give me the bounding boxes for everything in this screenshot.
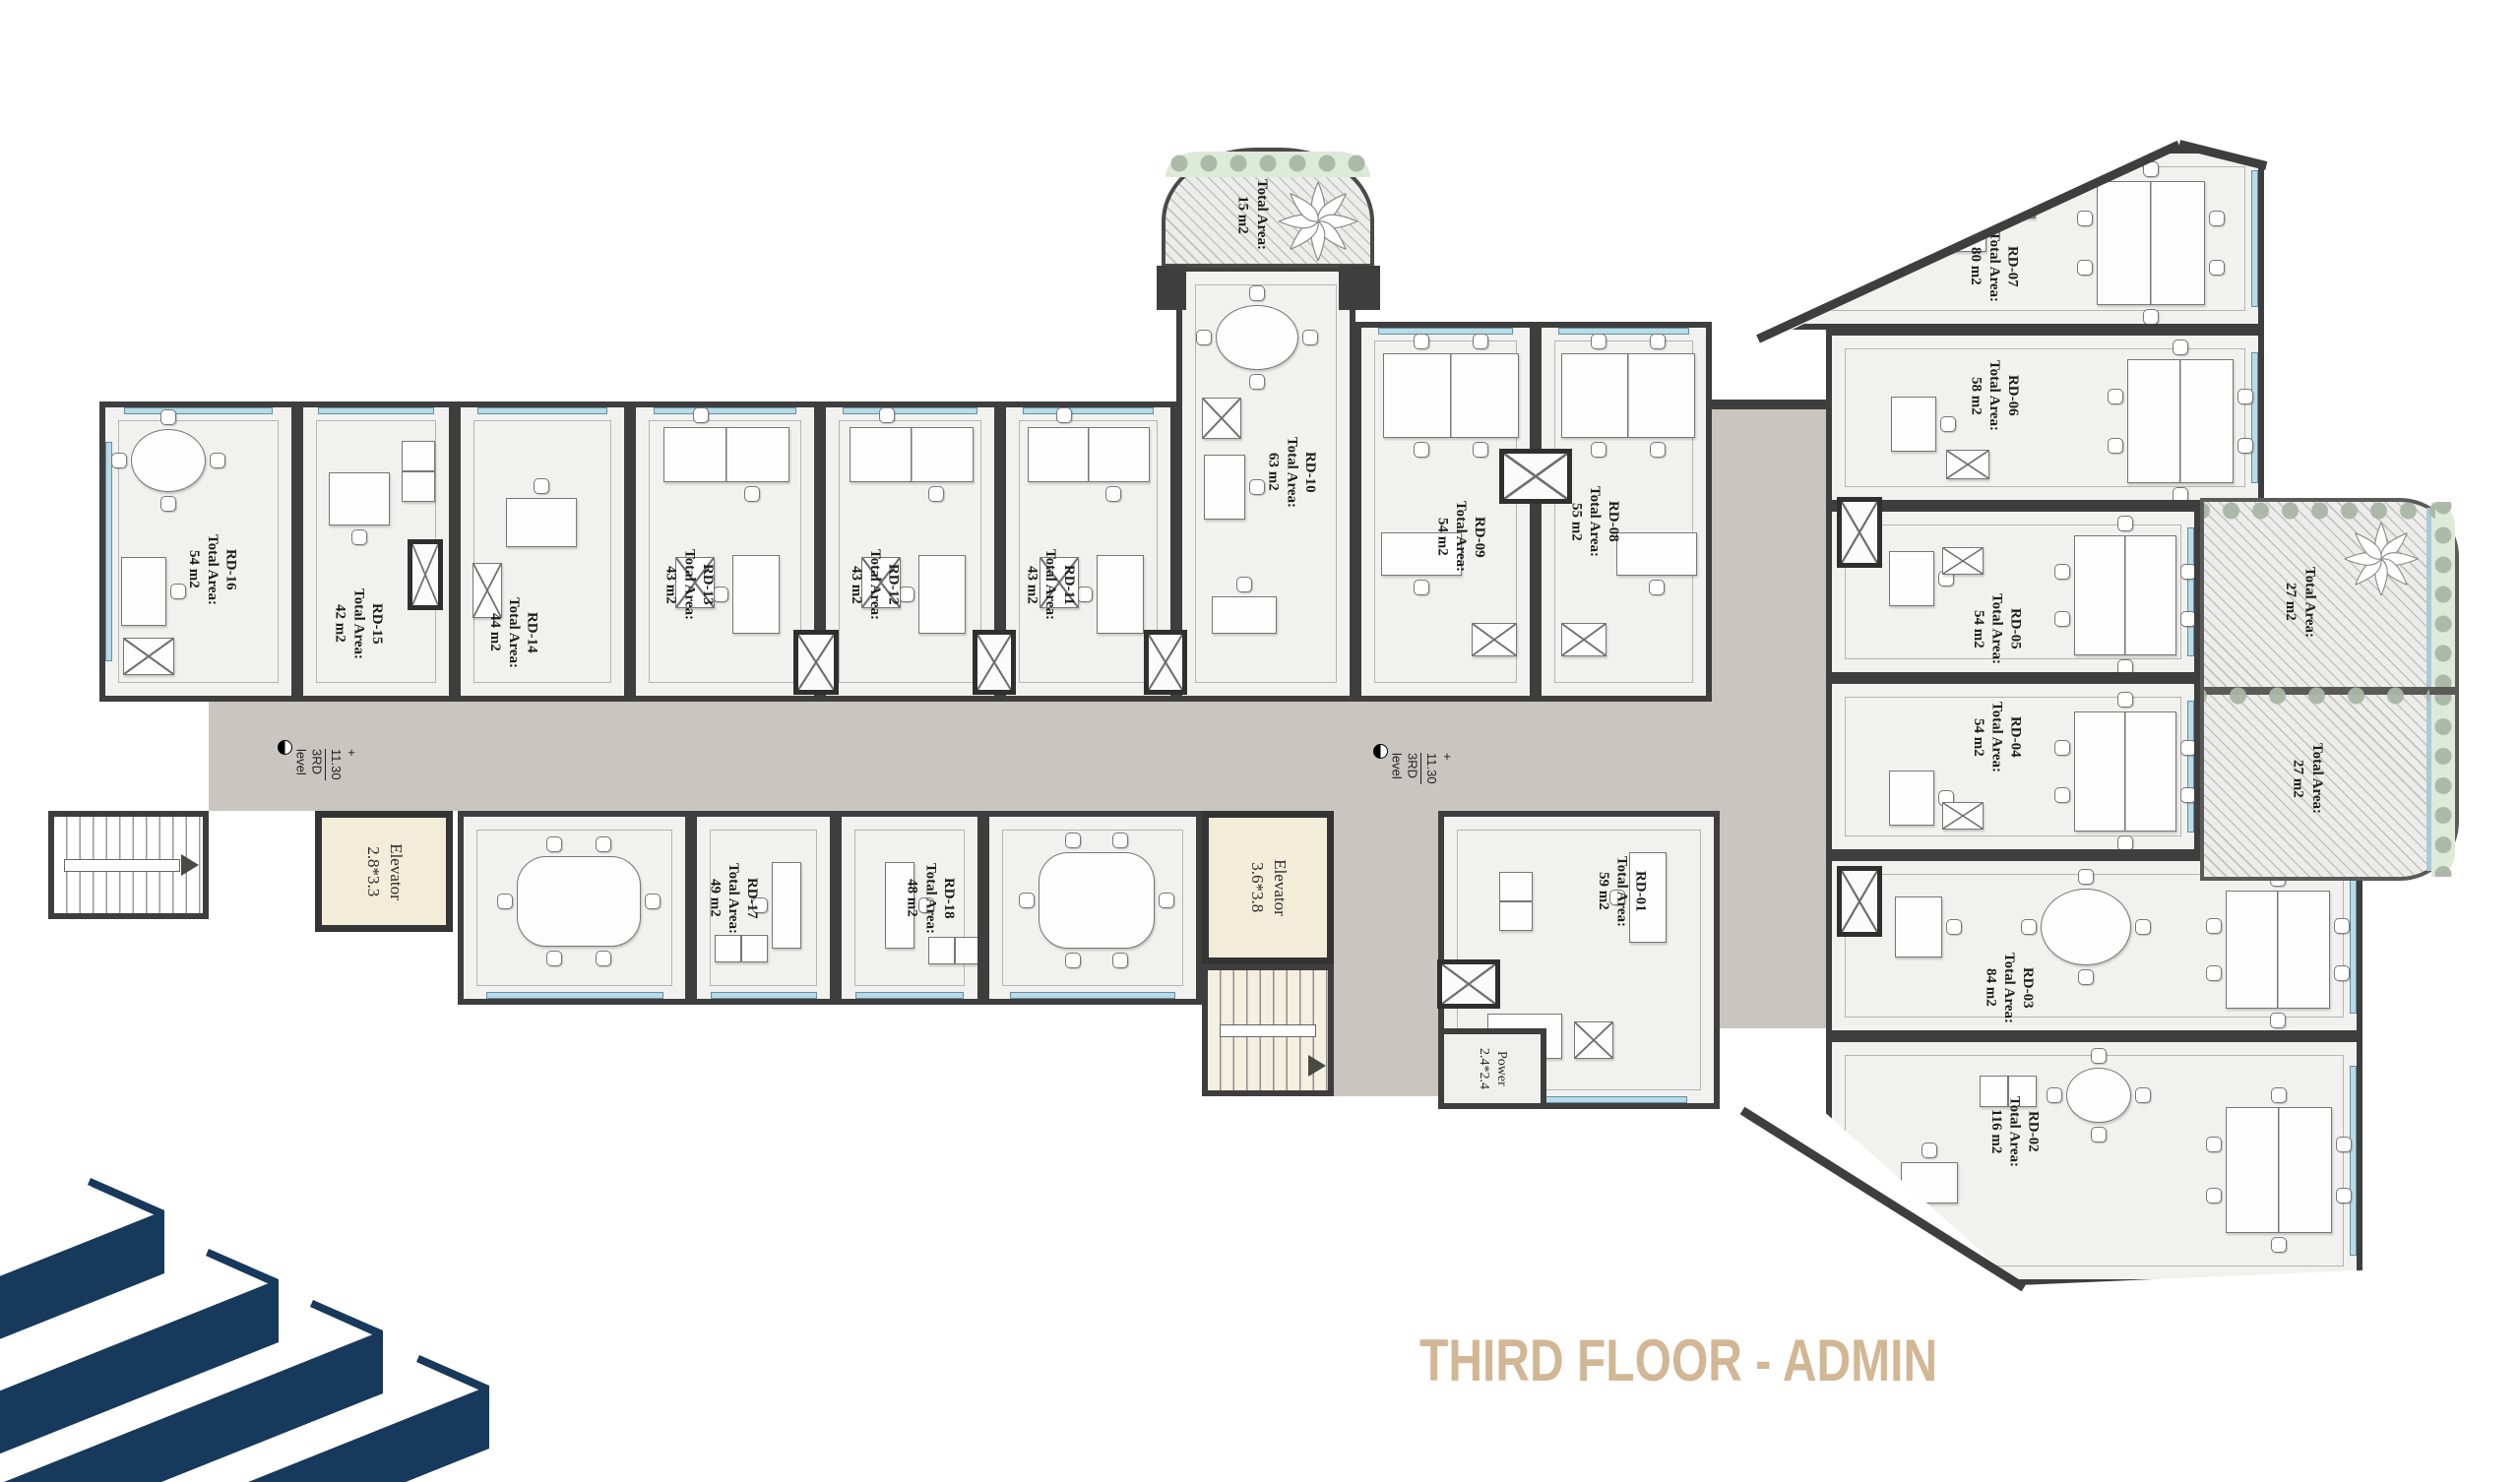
chair (2077, 211, 2093, 226)
chair (2206, 965, 2222, 981)
power-size: 2.4*2.4 (1475, 1048, 1492, 1089)
window (124, 407, 273, 414)
window (2187, 527, 2194, 655)
cabinet (1499, 872, 1533, 931)
desk (329, 472, 390, 525)
terrace-area-label: Total Area: (2299, 566, 2319, 637)
room-name: RD-09 (1470, 501, 1488, 572)
meeting-table (2041, 889, 2131, 965)
meeting-table (1039, 852, 1155, 949)
room-label: RD-09Total Area:54 m2 (1433, 501, 1488, 572)
window (477, 407, 608, 414)
desk (1891, 397, 1936, 452)
chair (2206, 1188, 2222, 1204)
chair (1414, 442, 1429, 458)
wall-pillar (1339, 266, 1380, 310)
chair (1649, 580, 1665, 595)
room-label: RD-05Total Area:54 m2 (1969, 593, 2024, 664)
workstation (2074, 711, 2176, 832)
level-name: 3RD level (1388, 753, 1420, 784)
chair (2047, 1087, 2062, 1103)
room-RD-05: RD-05Total Area:54 m2 (1826, 506, 2200, 678)
chair (2117, 835, 2133, 851)
chair (2209, 211, 2225, 226)
wardrobe (1561, 623, 1606, 656)
room-area-value: 54 m2 (1969, 593, 1987, 664)
terrace-area-value: 27 m2 (2288, 743, 2307, 814)
desk (1895, 896, 1942, 957)
chair (2180, 611, 2196, 627)
shrub-row-icon (2424, 695, 2463, 877)
wall-pillar (1157, 266, 1186, 310)
window (855, 992, 964, 999)
chair (546, 836, 562, 852)
elevator-label: Elevator 2.8*3.3 (361, 843, 407, 900)
shaft (1499, 449, 1572, 504)
workstation (1383, 353, 1519, 438)
cabinet (402, 441, 435, 502)
room-area-value: 42 m2 (331, 588, 349, 659)
elevator-west: Elevator 2.8*3.3 (315, 811, 453, 932)
terrace-area-value: 27 m2 (2280, 566, 2299, 637)
chair (2180, 740, 2196, 756)
room-name: RD-02 (2024, 1096, 2043, 1167)
desk (1901, 1162, 1958, 1204)
terrace-area-value: 15 m2 (1232, 179, 1252, 250)
chair (497, 894, 513, 909)
room-area-value: 43 m2 (661, 549, 680, 620)
chair (1056, 407, 1072, 423)
room-area-label: Total Area: (865, 549, 884, 620)
wall-cap (1712, 400, 1832, 409)
chair (1159, 893, 1174, 908)
room-area-label: Total Area: (1984, 360, 2003, 431)
room-area-label: Total Area: (1612, 856, 1631, 927)
meeting-table (517, 856, 641, 947)
chair (2237, 438, 2253, 454)
room-area-label: Total Area: (724, 863, 742, 934)
room-area-value: 116 m2 (1986, 1096, 2005, 1167)
window (1010, 992, 1175, 999)
page-title: THIRD FLOOR - ADMIN (1419, 1327, 1937, 1394)
chair (2143, 309, 2159, 325)
wardrobe (1472, 623, 1517, 656)
level-name: 3RD level (292, 749, 325, 780)
level-marker-text: + 11.30 3RD level (292, 749, 359, 780)
chair (2117, 516, 2133, 531)
room-label: RD-13Total Area:43 m2 (661, 549, 717, 620)
room-name: RD-17 (742, 863, 761, 934)
chair (351, 529, 367, 545)
terrace-east-upper: Total Area: 27 m2 (2200, 498, 2459, 691)
elevator-size: 2.8*3.3 (361, 843, 384, 900)
room-name: RD-16 (221, 534, 240, 605)
shaft (1437, 959, 1500, 1009)
chair (2206, 918, 2222, 934)
room-label: RD-18Total Area:48 m2 (903, 863, 958, 934)
chair (2054, 787, 2070, 803)
room-power: Power 2.4*2.4 (1438, 1028, 1546, 1109)
desk (732, 555, 780, 634)
room-name: RD-01 (1631, 856, 1650, 927)
shaft (973, 630, 1016, 695)
shaft (1837, 866, 1882, 937)
shrub-row-icon (2424, 502, 2463, 687)
room-name: RD-03 (2018, 953, 2037, 1023)
chair (2336, 1137, 2352, 1152)
room-area-label: Total Area: (349, 588, 368, 659)
chair (1112, 953, 1128, 968)
room-area-label: Total Area: (1283, 437, 1301, 508)
chair (1249, 374, 1265, 390)
chair (2078, 869, 2094, 885)
room-RD-02: RD-02Total Area:116 m2 (1826, 1036, 2362, 1285)
cabinet (715, 935, 768, 962)
workstation (2097, 181, 2205, 305)
room-name: RD-08 (1604, 486, 1622, 557)
chair (1236, 577, 1252, 592)
stair-direction-arrow-icon (181, 854, 199, 876)
chair (744, 486, 760, 502)
chair (693, 407, 709, 423)
chair (2180, 564, 2196, 580)
workstation (2226, 1107, 2332, 1233)
window (2187, 701, 2194, 833)
chair (1112, 833, 1128, 848)
desk (1889, 551, 1934, 606)
chair (1921, 1142, 1937, 1158)
window (105, 442, 112, 661)
chair (1019, 893, 1035, 908)
chair (2054, 564, 2070, 580)
room-area-value: 84 m2 (1982, 953, 2000, 1023)
room-name: RD-13 (698, 549, 717, 620)
chair (210, 453, 225, 468)
room-area-value: 43 m2 (1023, 549, 1041, 620)
workstation (663, 427, 789, 482)
room-name: RD-04 (2006, 702, 2025, 772)
chair (111, 453, 127, 468)
chair (2054, 740, 2070, 756)
room-label: RD-03Total Area:84 m2 (1982, 953, 2037, 1023)
window (2251, 352, 2258, 484)
room-name: RD-18 (939, 863, 958, 934)
room-area-label: Total Area: (1987, 702, 2006, 772)
workstation (850, 427, 974, 482)
chair (1921, 216, 1937, 231)
chair (645, 894, 661, 909)
chair (2237, 389, 2253, 404)
room-label: RD-06Total Area:58 m2 (1967, 360, 2022, 431)
room-area-label: Total Area: (2005, 1096, 2024, 1167)
chair (2336, 1188, 2352, 1204)
chair (2173, 487, 2188, 503)
company-logo-icon (0, 1132, 512, 1482)
tree-row-icon (2204, 675, 2429, 716)
desk (121, 557, 166, 626)
room-name: RD-05 (2006, 593, 2025, 664)
stairwell-west (48, 811, 209, 919)
room-area-label: Total Area: (921, 863, 940, 934)
room-label: RD-11Total Area:43 m2 (1023, 549, 1078, 620)
desk (1889, 771, 1934, 826)
chair (2117, 692, 2133, 708)
room-RD-06: RD-06Total Area:58 m2 (1826, 330, 2264, 506)
room-name: RD-07 (2003, 231, 2022, 302)
chair (1591, 442, 1606, 458)
chair (160, 496, 176, 512)
room-label: RD-15Total Area:42 m2 (331, 588, 386, 659)
chair (1196, 330, 1212, 345)
room-area-value: 58 m2 (1967, 360, 1985, 431)
room-area-label: Total Area: (203, 534, 221, 605)
chair (2173, 340, 2188, 355)
chair (1650, 334, 1666, 349)
workstation (1561, 353, 1695, 438)
chair (160, 409, 176, 425)
chair (1249, 285, 1265, 301)
room-RD-09: RD-09Total Area:54 m2 (1355, 322, 1536, 702)
room-name: RD-10 (1300, 437, 1319, 508)
level-datum-icon (1373, 744, 1388, 759)
desk (1204, 455, 1245, 520)
room-RD-18: RD-18Total Area:48 m2 (836, 811, 983, 1005)
desk (1097, 555, 1144, 634)
terrace-label: Total Area: 27 m2 (2280, 566, 2318, 637)
desk (772, 862, 801, 949)
chair (2334, 965, 2350, 981)
chair (2021, 919, 2037, 935)
chair (2180, 787, 2196, 803)
window (1023, 407, 1155, 414)
chair (1414, 334, 1429, 349)
power-name: Power (1492, 1048, 1510, 1089)
chair (879, 407, 895, 423)
terrace-north: Total Area: 15 m2 (1162, 148, 1374, 268)
room-area-value: 54 m2 (1433, 501, 1452, 572)
chair (1414, 580, 1429, 595)
desk (506, 498, 577, 547)
plant-flower-icon (1276, 179, 1360, 264)
room-label: RD-16Total Area:54 m2 (184, 534, 239, 605)
cabinet (928, 937, 981, 964)
corridor-horizontal (209, 702, 1832, 811)
window (2251, 170, 2258, 306)
elevator-name: Elevator (1268, 859, 1291, 916)
room-RD-10: RD-10Total Area:63 m2 (1176, 266, 1355, 702)
room-area-label: Total Area: (680, 549, 699, 620)
room-RD-14: RD-14Total Area:44 m2 (455, 401, 630, 702)
chair (2271, 1087, 2287, 1103)
room-meeting-1 (458, 811, 691, 1005)
room-area-label: Total Area: (1040, 549, 1059, 620)
corridor-vertical (1712, 409, 1832, 1028)
shaft (408, 539, 443, 610)
floor-plan: RD-16Total Area:54 m2RD-15Total Area:42 … (0, 0, 2520, 1482)
room-RD-16: RD-16Total Area:54 m2 (99, 401, 297, 702)
workstation (2226, 891, 2330, 1009)
room-area-label: Total Area: (1984, 231, 2003, 302)
wardrobe (1202, 398, 1241, 439)
room-area-label: Total Area: (1999, 953, 2018, 1023)
chair (2077, 260, 2093, 276)
terrace-east-lower: Total Area: 27 m2 (2200, 691, 2459, 881)
chair (2135, 1087, 2151, 1103)
room-RD-13: RD-13Total Area:43 m2 (630, 401, 820, 702)
chair (534, 478, 549, 494)
room-RD-04: RD-04Total Area:54 m2 (1826, 678, 2200, 855)
chair (2091, 1127, 2107, 1142)
room-RD-03: RD-03Total Area:84 m2 (1826, 855, 2362, 1036)
workstation (2127, 359, 2234, 483)
chair (1065, 833, 1081, 848)
chair (2078, 969, 2094, 985)
window (654, 407, 796, 414)
corridor-south (1334, 811, 1438, 1096)
room-RD-08: RD-08Total Area:55 m2 (1536, 322, 1712, 702)
chair (2108, 438, 2123, 454)
terrace-label: Total Area: 27 m2 (2288, 743, 2326, 814)
chair (1065, 953, 1081, 968)
desk (918, 555, 966, 634)
room-area-value: 44 m2 (485, 597, 504, 668)
room-label: RD-01Total Area:59 m2 (1594, 856, 1649, 927)
wardrobe (1946, 450, 1989, 479)
window (486, 992, 663, 999)
desk (1616, 532, 1697, 576)
level-elevation: + 11.30 (325, 749, 360, 780)
room-name: RD-06 (2003, 360, 2022, 431)
room-label: RD-04Total Area:54 m2 (1969, 702, 2024, 772)
chair (2334, 918, 2350, 934)
room-label: RD-08Total Area:55 m2 (1567, 486, 1622, 557)
chair (596, 951, 611, 966)
chair (1473, 442, 1488, 458)
stairwell-central (1202, 964, 1334, 1096)
wardrobe (123, 638, 174, 675)
chair (1249, 479, 1265, 495)
wardrobe (1942, 547, 1984, 575)
room-label: RD-02Total Area:116 m2 (1986, 1096, 2042, 1167)
chair (2206, 1137, 2222, 1152)
wardrobe (1942, 802, 1984, 830)
room-area-label: Total Area: (504, 597, 523, 668)
shaft (793, 630, 839, 695)
elevator-name: Elevator (384, 843, 407, 900)
chair (2271, 1237, 2287, 1253)
shaft (1837, 497, 1882, 568)
workstation (2074, 535, 2176, 655)
terrace-area-label: Total Area: (2307, 743, 2327, 814)
room-area-label: Total Area: (1451, 501, 1470, 572)
chair (1946, 919, 1962, 935)
chair (596, 836, 611, 852)
room-name: RD-12 (884, 549, 903, 620)
window (1378, 328, 1513, 335)
room-area-label: Total Area: (1987, 593, 2006, 664)
room-area-value: 49 m2 (706, 863, 724, 934)
chair (1105, 486, 1121, 502)
level-marker-text: + 11.30 3RD level (1388, 753, 1455, 784)
chair (2135, 919, 2151, 935)
room-area-value: 59 m2 (1594, 856, 1612, 927)
chair (2209, 260, 2225, 276)
power-label: Power 2.4*2.4 (1475, 1048, 1510, 1089)
window (318, 407, 434, 414)
chair (2108, 389, 2123, 404)
terrace-label: Total Area: 15 m2 (1232, 179, 1271, 250)
stair-direction-arrow-icon (1308, 1055, 1326, 1077)
chair (1591, 334, 1606, 349)
chair (2054, 611, 2070, 627)
room-area-value: 43 m2 (847, 549, 865, 620)
window (2350, 1066, 2357, 1256)
room-area-value: 54 m2 (184, 534, 203, 605)
elevator-size: 3.6*3.8 (1245, 859, 1268, 916)
window (2350, 878, 2357, 1014)
workstation (1028, 427, 1150, 482)
chair (1650, 442, 1666, 458)
chair (1940, 416, 1956, 432)
level-datum-icon (278, 740, 292, 755)
room-meeting-2 (983, 811, 1202, 1005)
window (711, 992, 817, 999)
window (843, 407, 977, 414)
room-area-value: 48 m2 (903, 863, 921, 934)
room-name: RD-15 (367, 588, 386, 659)
shaft (1144, 630, 1187, 695)
room-label: RD-17Total Area:49 m2 (706, 863, 761, 934)
chair (1077, 587, 1093, 602)
chair (1473, 334, 1488, 349)
desk (1212, 596, 1277, 634)
room-area-value: 63 m2 (1264, 437, 1283, 508)
elevator-label: Elevator 3.6*3.8 (1245, 859, 1291, 916)
room-label: RD-12Total Area:43 m2 (847, 549, 902, 620)
chair (546, 951, 562, 966)
shrub-row-icon (1165, 146, 1370, 181)
chair (2091, 1048, 2107, 1064)
window (1558, 328, 1690, 335)
wardrobe (1574, 1021, 1613, 1059)
terrace-area-label: Total Area: (1251, 179, 1271, 250)
room-name: RD-11 (1059, 549, 1078, 620)
chair (928, 486, 944, 502)
meeting-table (131, 429, 206, 492)
chair (1302, 330, 1318, 345)
room-name: RD-14 (523, 597, 541, 668)
stair-rail (1220, 1024, 1316, 1037)
stair-rail (64, 859, 180, 872)
meeting-table (2066, 1068, 2131, 1123)
room-label: RD-14Total Area:44 m2 (485, 597, 540, 668)
chair (2270, 1013, 2286, 1028)
room-RD-17: RD-17Total Area:49 m2 (691, 811, 836, 1005)
room-label: RD-10Total Area:63 m2 (1264, 437, 1319, 508)
room-area-label: Total Area: (1585, 486, 1604, 557)
room-area-value: 54 m2 (1969, 702, 1987, 772)
chair (2117, 659, 2133, 675)
level-elevation: + 11.30 (1420, 753, 1456, 784)
meeting-table (1216, 305, 1298, 370)
elevator-central: Elevator 3.6*3.8 (1202, 811, 1334, 964)
plant-flower-icon (2342, 520, 2421, 598)
